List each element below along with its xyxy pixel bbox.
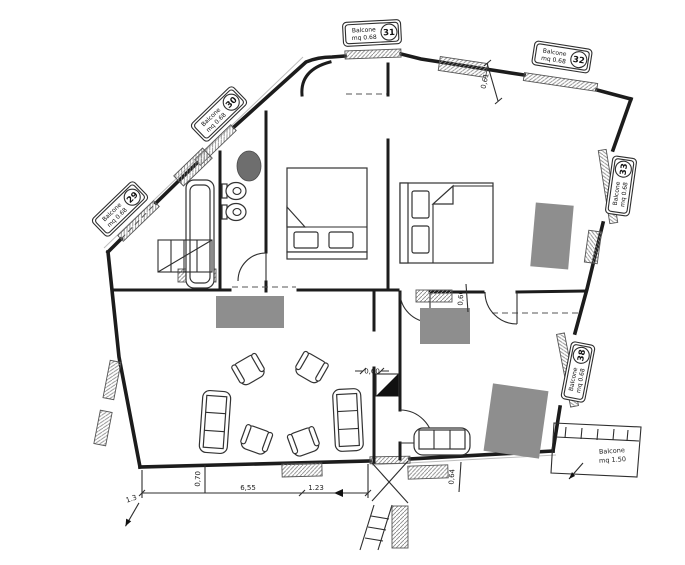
entry-stair-hatch — [392, 506, 408, 548]
dim-mid-right: 0,60 — [457, 284, 468, 312]
sofa-small — [414, 428, 470, 455]
balcony-note-area: mq 1.50 — [599, 455, 626, 465]
svg-text:6,55: 6,55 — [240, 484, 256, 492]
living-radiator — [282, 463, 322, 477]
sitting-room-radiator — [408, 465, 448, 479]
svg-text:1.3: 1.3 — [125, 494, 138, 505]
top-window — [438, 57, 488, 78]
balcony-tag-30: Balcone mq 0.68 30 — [190, 85, 248, 143]
dim-lower-right: 0,64 — [447, 462, 461, 492]
svg-text:1.23: 1.23 — [308, 484, 324, 492]
mid-room-cabinet — [420, 308, 470, 344]
balcony-32-sill — [523, 73, 597, 92]
balcony-32-number: 32 — [572, 55, 585, 67]
balcony-tag-33: Balcone mq 0.68 33 — [605, 156, 637, 217]
entry-stairs — [360, 505, 408, 550]
bed-double-1 — [287, 168, 367, 259]
bathroom — [158, 151, 261, 288]
svg-text:0,60: 0,60 — [364, 368, 380, 376]
bedroom2-wardrobe — [530, 202, 573, 269]
armchair — [239, 424, 274, 456]
sitting-room-wardrobe — [484, 383, 549, 458]
mid-room-radiator — [416, 290, 452, 302]
floor-plan-canvas: Balcone mq 1.50 Balcone mq 0.68 29 Balco… — [0, 0, 685, 565]
gray-furniture — [216, 202, 574, 458]
bathroom-door-arc — [238, 253, 266, 281]
toilet — [222, 183, 246, 200]
room2-door-arc — [485, 292, 517, 324]
washbasin — [237, 151, 261, 181]
armchair — [293, 351, 329, 386]
living-sideboard — [216, 296, 284, 328]
balcony-tag-29: Balcone mq 0.68 29 — [91, 180, 149, 238]
living-room-seating — [199, 351, 364, 458]
balcony-31-area: mq 0.68 — [352, 34, 377, 42]
dim-bottom-corner: 1.3 — [117, 493, 145, 526]
svg-text:0,70: 0,70 — [194, 471, 203, 487]
balcony-tag-32: Balcone mq 0.68 32 — [531, 41, 592, 74]
balcony-31-number: 31 — [383, 28, 395, 39]
sofa-right — [332, 388, 363, 451]
entry-door-swing — [372, 461, 408, 503]
dim-lower-left: 0,70 — [194, 465, 205, 493]
right-window — [584, 230, 601, 263]
bidet — [222, 204, 246, 221]
left-radiator — [94, 410, 112, 446]
armchair — [287, 426, 322, 458]
floor-plan-page: Balcone mq 1.50 Balcone mq 0.68 29 Balco… — [0, 0, 685, 565]
duct-triangle — [376, 374, 398, 396]
entry-door-sill — [370, 456, 410, 464]
svg-text:0,60: 0,60 — [457, 290, 466, 306]
balcony-tag-31: Balcone mq 0.68 31 — [342, 19, 401, 46]
left-window — [103, 360, 121, 399]
balcony-33-number: 33 — [619, 163, 631, 176]
balcony-31-sill — [345, 49, 401, 59]
armchair — [231, 353, 267, 388]
bottom-right-balcony: Balcone mq 1.50 — [551, 423, 641, 479]
bed-double-2 — [400, 183, 493, 263]
dim-bottom: 6,55 1.23 — [139, 464, 371, 498]
sofa-left — [199, 390, 231, 454]
svg-text:0,64: 0,64 — [447, 468, 456, 485]
